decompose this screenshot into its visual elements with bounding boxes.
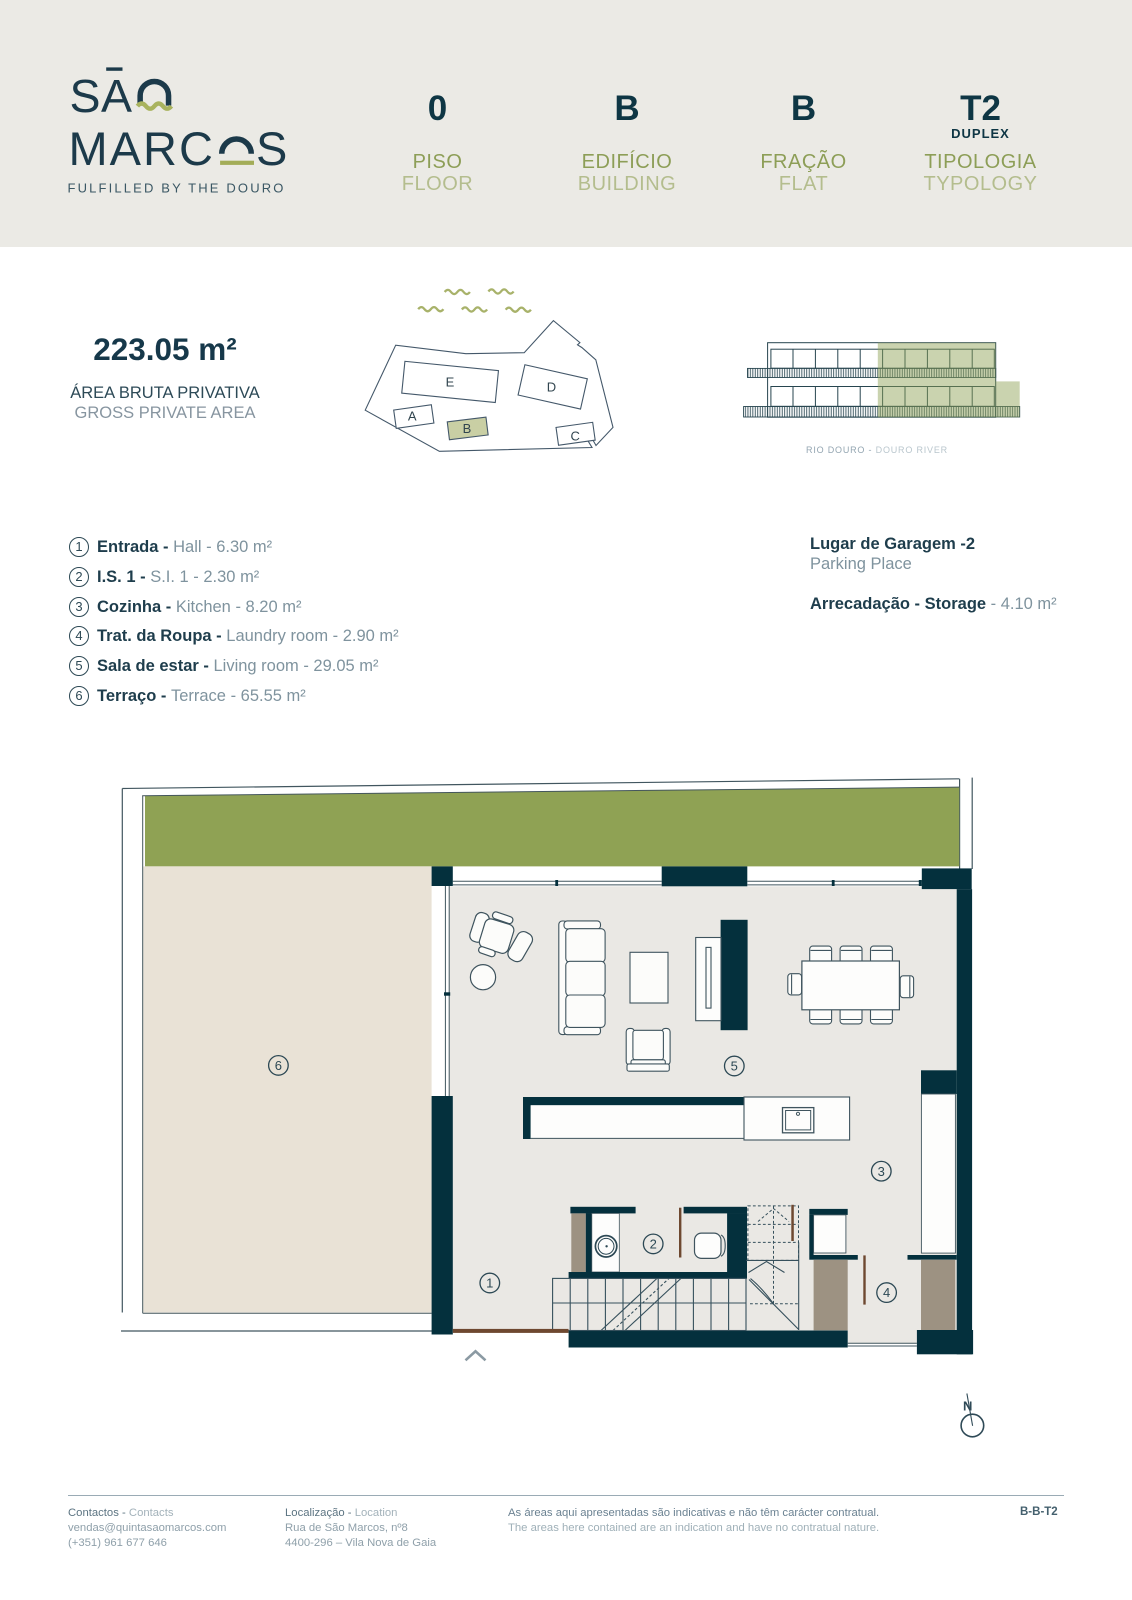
svg-text:2: 2 (650, 1237, 657, 1252)
svg-text:6: 6 (275, 1058, 282, 1073)
svg-text:5: 5 (731, 1059, 738, 1074)
svg-text:N: N (963, 1399, 972, 1414)
svg-text:3: 3 (878, 1164, 885, 1179)
svg-text:4: 4 (883, 1285, 890, 1300)
svg-text:1: 1 (486, 1276, 493, 1291)
